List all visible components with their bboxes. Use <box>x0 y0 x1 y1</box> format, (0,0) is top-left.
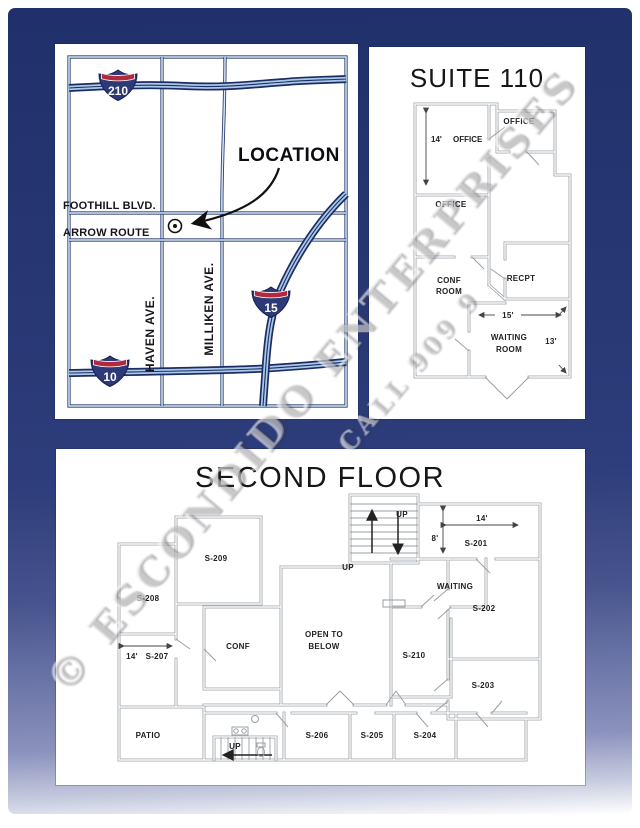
shield-number-10: 10 <box>103 370 117 384</box>
second-floor-title: SECOND FLOOR <box>195 462 445 494</box>
room-label-s209: S-209 <box>205 554 228 563</box>
second-floor-dimensions <box>124 511 518 646</box>
shield-number-15: 15 <box>264 301 278 315</box>
room-label-office-mid: OFFICE <box>435 200 466 209</box>
location-arrow-icon <box>195 168 279 223</box>
room-label-s208: S-208 <box>137 594 160 603</box>
room-label-conf: CONF <box>226 642 250 651</box>
dim-14ft-label: 14' <box>431 135 442 144</box>
dim-13ft-label: 13' <box>545 337 557 346</box>
location-map: 210 15 10 FOOTHILL BLVD. ARROW ROUTE HAV… <box>55 44 358 419</box>
room-label-office-14: OFFICE <box>453 135 483 144</box>
location-label: LOCATION <box>238 145 340 166</box>
room-label-waiting-2: ROOM <box>496 345 522 354</box>
street-label-haven: HAVEN AVE. <box>143 296 157 372</box>
shield-number-210: 210 <box>108 84 128 98</box>
dim-14ft-b-label: 14' <box>126 652 138 661</box>
street-label-milliken: MILLIKEN AVE. <box>202 262 216 355</box>
stairwell-bottom <box>214 737 276 760</box>
stairs-up-label-mid: UP <box>342 563 354 572</box>
dim-14ft-label: 14' <box>476 514 488 523</box>
room-label-s206: S-206 <box>306 731 329 740</box>
stairs-up-label-bottom: UP <box>229 742 241 751</box>
room-label-conf-2: ROOM <box>436 287 462 296</box>
second-floor-panel: SECOND FLOOR <box>56 449 585 785</box>
flyer-page: 210 15 10 FOOTHILL BLVD. ARROW ROUTE HAV… <box>0 0 640 828</box>
stairs-up-label-top: UP <box>396 510 408 519</box>
interstate-15-shield: 15 <box>252 287 290 318</box>
room-label-s210: S-210 <box>403 651 426 660</box>
room-label-open-to: OPEN TO <box>305 630 343 639</box>
location-map-panel: 210 15 10 FOOTHILL BLVD. ARROW ROUTE HAV… <box>55 44 358 419</box>
street-label-foothill: FOOTHILL BLVD. <box>63 200 156 212</box>
room-label-s203: S-203 <box>472 681 495 690</box>
room-label-s205: S-205 <box>361 731 384 740</box>
room-label-office-top: OFFICE <box>503 117 534 126</box>
dim-8ft-label: 8' <box>432 534 439 543</box>
suite-110-panel: SUITE 110 14' OFFICE OFFICE OFFICE CONF … <box>369 47 585 419</box>
dim-15ft-label: 15' <box>502 311 514 320</box>
room-label-conf-1: CONF <box>437 276 461 285</box>
suite-110-plan: SUITE 110 14' OFFICE OFFICE OFFICE CONF … <box>369 47 585 419</box>
second-floor-walls <box>119 495 540 760</box>
room-label-s202: S-202 <box>473 604 496 613</box>
room-label-recpt: RECPT <box>507 274 536 283</box>
room-label-waiting-1: WAITING <box>491 333 527 342</box>
interstate-210-shield: 210 <box>99 70 137 101</box>
street-label-arrow-route: ARROW ROUTE <box>63 227 150 239</box>
location-marker-icon <box>169 220 182 233</box>
room-label-s201: S-201 <box>465 539 488 548</box>
room-label-below: BELOW <box>308 642 339 651</box>
interstate-10-shield: 10 <box>91 356 129 387</box>
room-label-patio: PATIO <box>136 731 161 740</box>
room-label-s204: S-204 <box>414 731 437 740</box>
room-label-s207: S-207 <box>146 652 169 661</box>
room-label-waiting: WAITING <box>437 582 473 591</box>
suite-title: SUITE 110 <box>410 63 544 93</box>
second-floor-plan: SECOND FLOOR <box>56 449 585 785</box>
